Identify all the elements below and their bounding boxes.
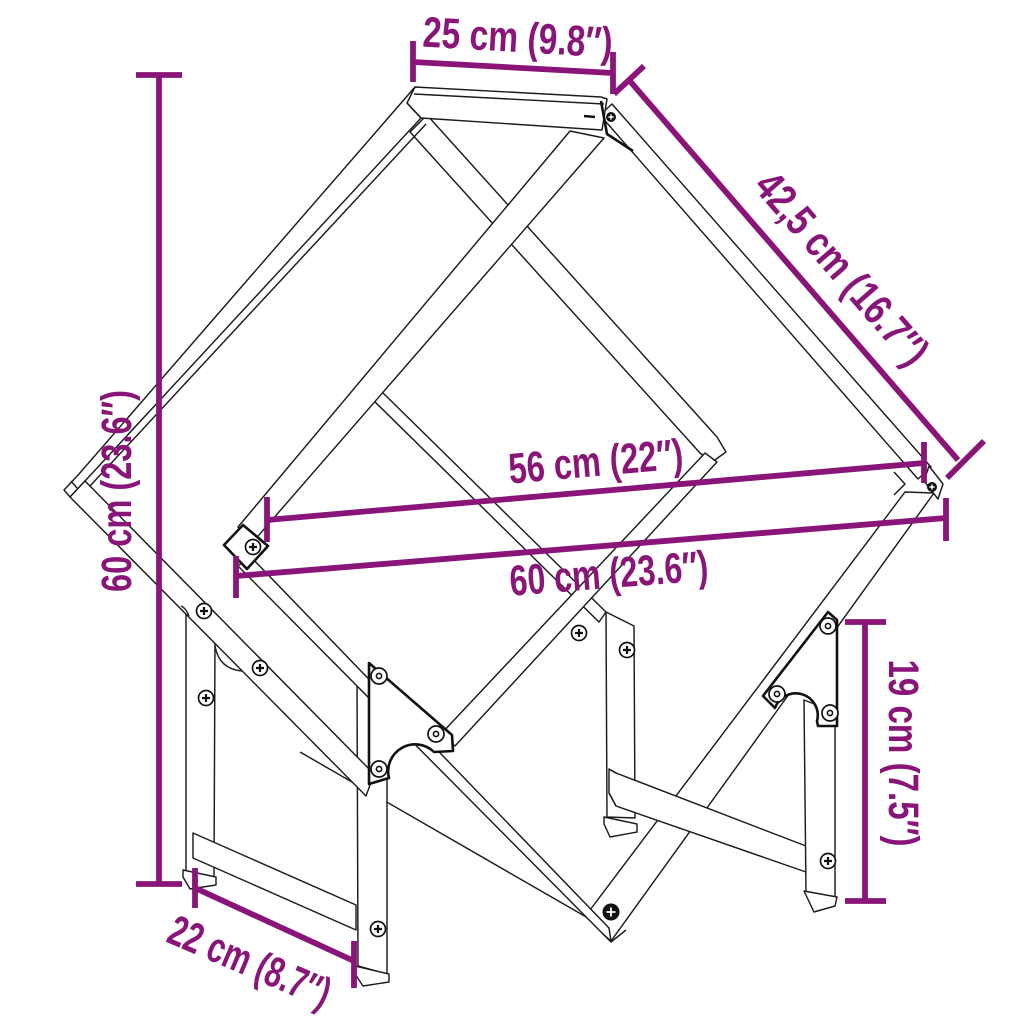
svg-text:19 cm (7.5″): 19 cm (7.5″) [879,660,927,847]
svg-text:60 cm (23.6″): 60 cm (23.6″) [93,390,141,592]
